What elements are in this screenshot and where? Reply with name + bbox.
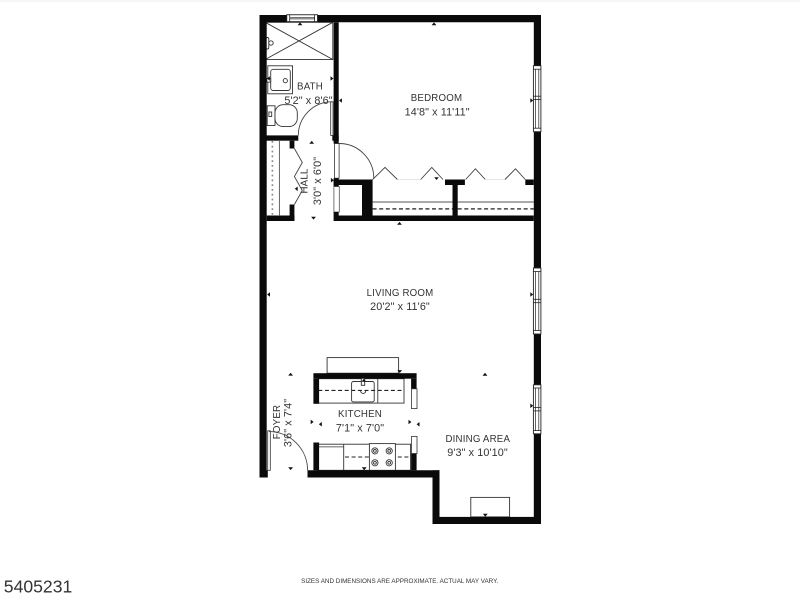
- svg-text:3'0" x 6'0": 3'0" x 6'0": [312, 157, 324, 205]
- svg-text:20'2" x 11'6": 20'2" x 11'6": [370, 301, 430, 313]
- svg-text:FOYER: FOYER: [272, 405, 283, 439]
- svg-text:5405231: 5405231: [4, 576, 73, 596]
- svg-text:7'1" x 7'0": 7'1" x 7'0": [336, 422, 384, 434]
- svg-text:KITCHEN: KITCHEN: [338, 409, 382, 420]
- svg-text:3'6" x 7'4": 3'6" x 7'4": [283, 399, 295, 447]
- svg-text:BEDROOM: BEDROOM: [411, 93, 462, 104]
- svg-text:9'3" x 10'10": 9'3" x 10'10": [447, 447, 508, 459]
- svg-text:LIVING ROOM: LIVING ROOM: [367, 288, 434, 299]
- svg-text:5'2" x 8'6": 5'2" x 8'6": [284, 95, 332, 107]
- svg-text:BATH: BATH: [297, 81, 323, 92]
- svg-text:DINING AREA: DINING AREA: [445, 434, 510, 445]
- svg-text:SIZES AND DIMENSIONS ARE APPRO: SIZES AND DIMENSIONS ARE APPROXIMATE. AC…: [301, 578, 498, 585]
- svg-text:HALL: HALL: [300, 168, 311, 193]
- svg-text:14'8" x 11'11": 14'8" x 11'11": [405, 106, 470, 118]
